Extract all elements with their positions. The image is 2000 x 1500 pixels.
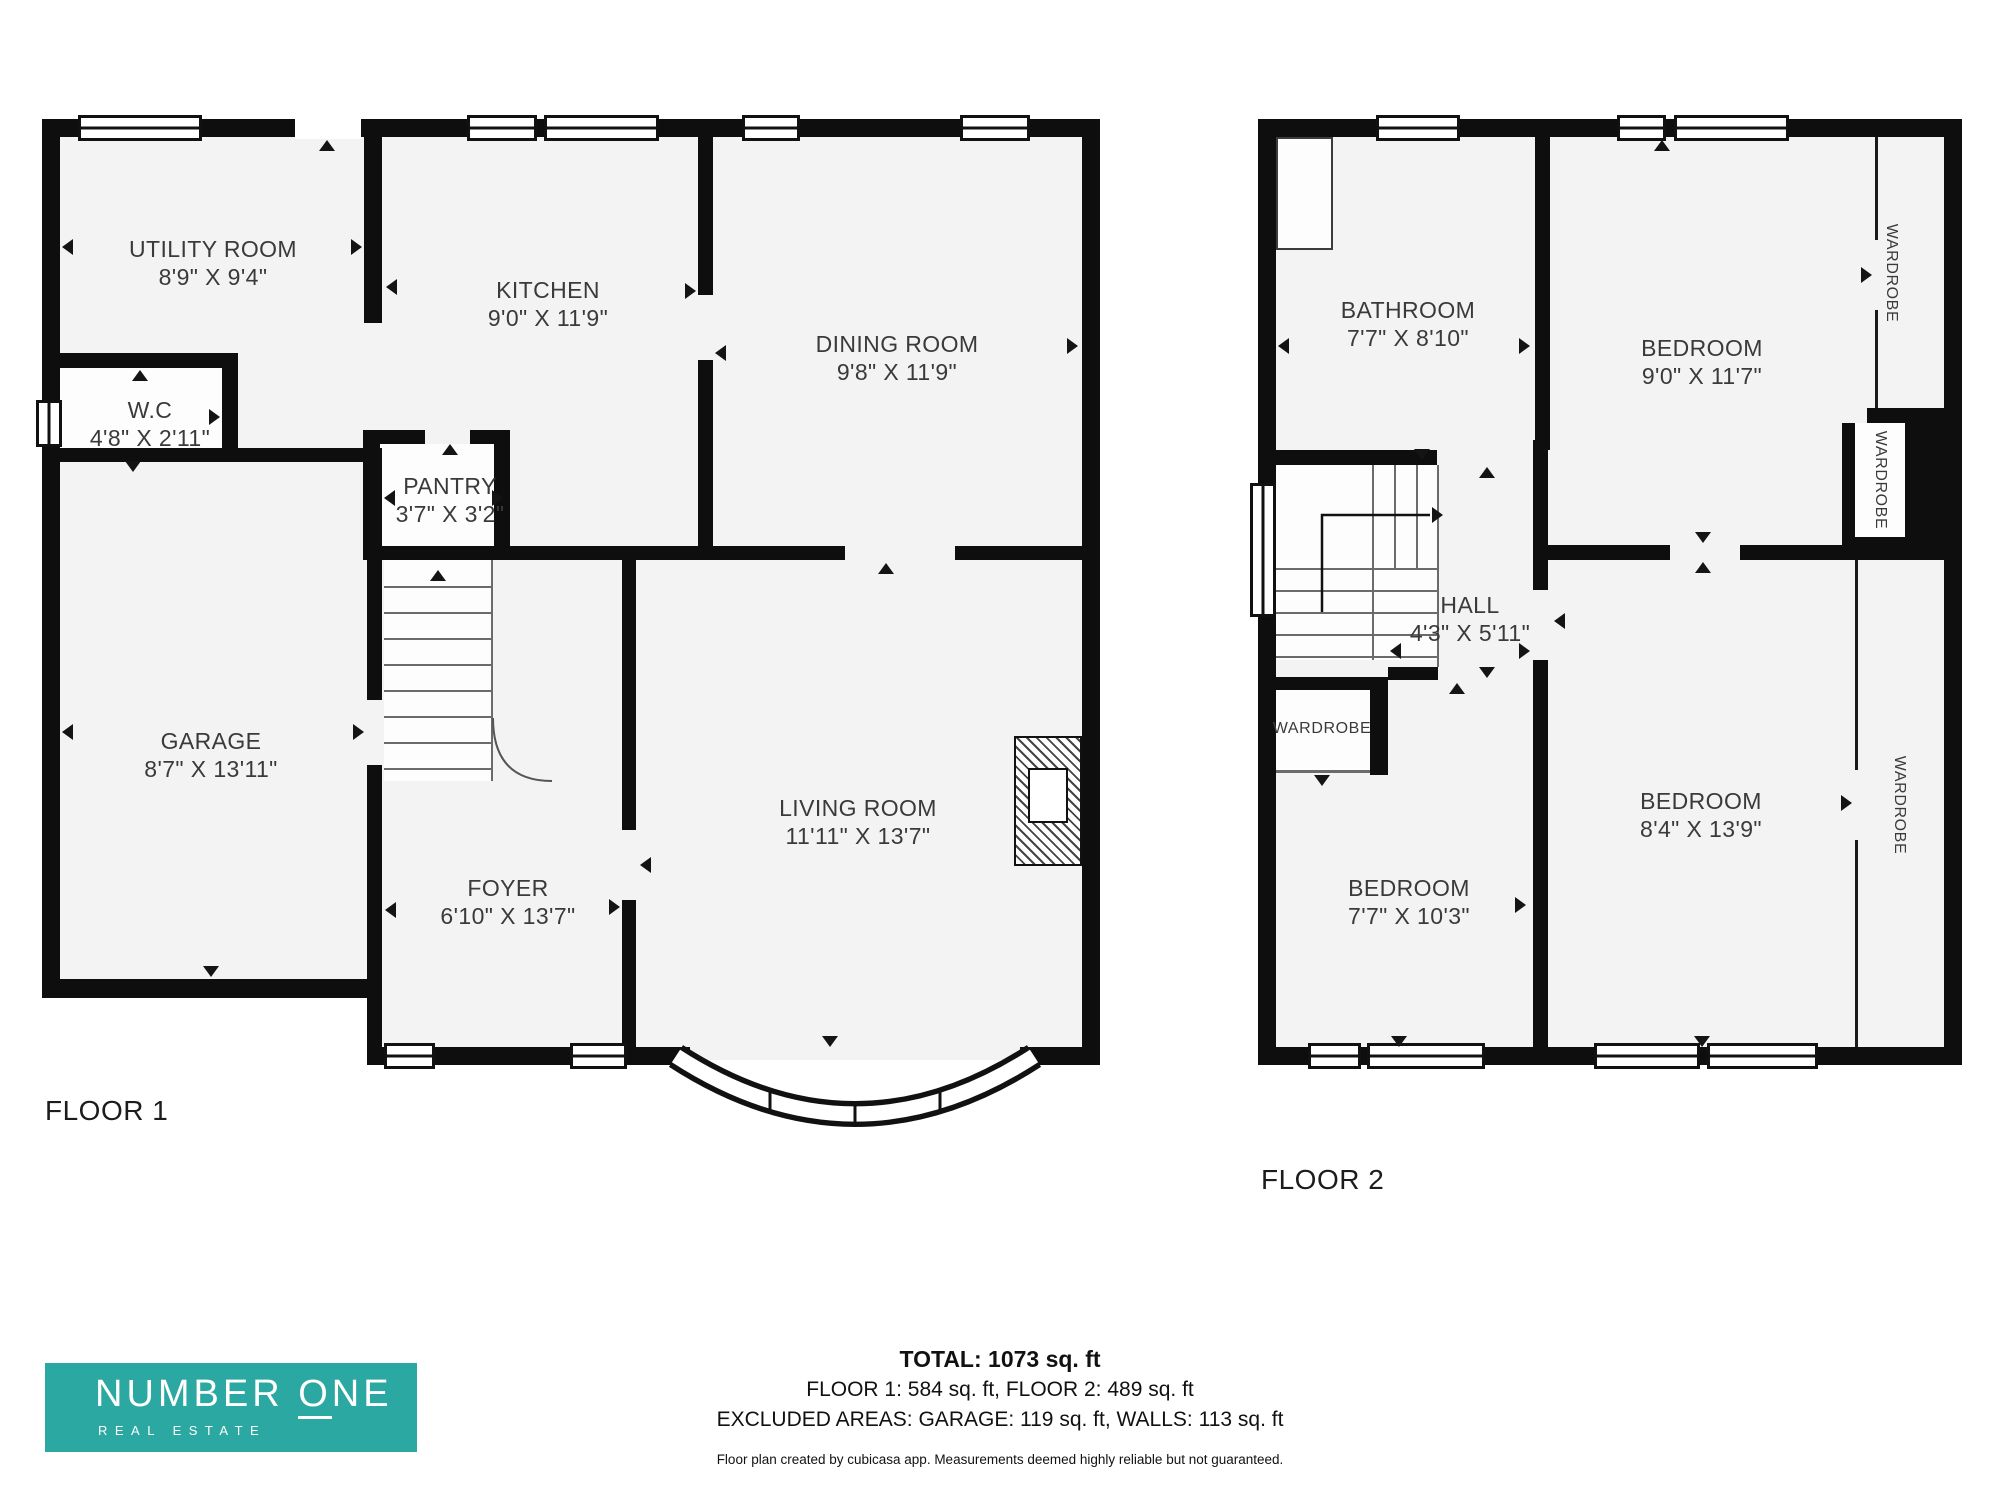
room-label-foyer: FOYER 6'10" X 13'7" [440,874,575,930]
window-icon [1308,1043,1361,1069]
window-icon [384,1043,435,1069]
stair-tread-line [384,638,491,640]
wall-segment [1905,423,1962,540]
door-arrow-icon [1432,507,1443,523]
door-arrow-icon [209,409,220,425]
logo-brand-o-underlined: O [298,1373,332,1419]
door-arrow-icon [1695,562,1711,573]
door-arrow-icon [203,966,219,977]
disclaimer-text: Floor plan created by cubicasa app. Meas… [0,1452,2000,1467]
door-arrow-icon [1654,140,1670,151]
wall-segment [1020,1047,1100,1065]
wall-segment [1082,119,1100,1065]
stair-tread-line [384,612,491,614]
room-name: DINING ROOM [816,330,979,358]
window-icon [1674,115,1789,141]
door-arrow-icon [1479,667,1495,678]
door-arrow-icon [1414,449,1430,460]
room-name: GARAGE [144,727,277,755]
room-dims: 8'4" X 13'9" [1640,815,1762,843]
door-arrow-icon [1390,643,1401,659]
stair-tread-line [384,664,491,666]
room-label-bathroom: BATHROOM 7'7" X 8'10" [1341,296,1475,352]
wall-segment [364,119,382,323]
stair-tread-line [1372,465,1374,660]
wall-segment [1535,119,1550,450]
door-arrow-icon [685,283,696,299]
stair-tread-line [1416,465,1418,568]
room-label-living-room: LIVING ROOM 11'11" X 13'7" [779,794,937,850]
room-name: PANTRY [396,472,505,500]
door-arrow-icon [351,239,362,255]
wall-segment [367,765,382,1065]
door-arrow-icon [1278,338,1289,354]
stair-tread-line [384,742,491,744]
room-label-bedroom-top: BEDROOM 9'0" X 11'7" [1641,334,1763,390]
window-icon [1367,1043,1485,1069]
room-label-kitchen: KITCHEN 9'0" X 11'9" [488,276,608,332]
window-icon [544,115,659,141]
wardrobe-front-line [1875,137,1878,240]
door-arrow-icon [132,370,148,381]
room-dims: 9'0" X 11'9" [488,304,608,332]
room-dims: 9'0" X 11'7" [1641,362,1763,390]
wall-segment [702,546,845,560]
fireplace-opening [1028,768,1068,823]
wall-segment [1533,440,1548,590]
door-arrow-icon [1695,532,1711,543]
room-label-hall: HALL 4'3" X 5'11" [1410,591,1530,647]
door-arrow-icon [1314,775,1330,786]
wall-segment [42,353,238,368]
room-label-wardrobe-top-right: WARDROBE [1882,224,1900,322]
wall-segment [1370,677,1388,775]
room-name: KITCHEN [488,276,608,304]
logo-brand-part2: NE [332,1373,393,1415]
room-label-garage: GARAGE 8'7" X 13'11" [144,727,277,783]
stair-tread-line [1276,568,1437,570]
floor2-caption: FLOOR 2 [1261,1164,1384,1196]
wall-segment [1740,545,1850,560]
door-arrow-icon [1861,267,1872,283]
door-arrow-icon [1479,467,1495,478]
wall-segment [1535,545,1670,560]
door-arrow-icon [1694,1036,1710,1047]
wall-segment [222,353,238,462]
room-name: HALL [1410,591,1530,619]
wall-segment [363,430,380,560]
door-opening [295,117,361,139]
room-dims: 9'8" X 11'9" [816,358,979,386]
room-label-wc: W.C 4'8" X 2'11" [90,396,210,452]
room-dims: 3'7" X 3'2" [396,500,505,528]
window-icon [742,115,800,141]
room-name: UTILITY ROOM [129,235,297,263]
wardrobe-front-line [1875,310,1878,408]
door-arrow-icon [1067,338,1078,354]
room-name: BEDROOM [1640,787,1762,815]
door-arrow-icon [62,724,73,740]
window-icon [78,115,202,141]
door-arrow-icon [319,140,335,151]
window-icon [36,400,62,447]
room-dims: 8'9" X 9'4" [129,263,297,291]
door-arrow-icon [1449,683,1465,694]
closet-nook [1276,137,1333,250]
stair-tread-line [384,690,491,692]
stair-tread-line [1394,465,1396,568]
door-arrow-icon [1554,613,1565,629]
wall-segment [1258,119,1962,137]
window-icon [1250,483,1276,617]
room-name: BEDROOM [1641,334,1763,362]
room-name: BEDROOM [1348,874,1470,902]
wall-segment [622,900,636,1065]
wall-segment [1867,408,1962,423]
window-icon [467,115,537,141]
door-arrow-icon [442,444,458,455]
room-dims: 7'7" X 8'10" [1341,324,1475,352]
stair-tread-line [384,586,491,588]
wall-segment [1258,450,1437,465]
room-fill-light [384,560,493,781]
door-arrow-icon [386,279,397,295]
door-arrow-icon [609,899,620,915]
floorplan-geometry [0,0,2000,1500]
door-arrow-icon [385,902,396,918]
door-arrow-icon [1515,897,1526,913]
stair-tread-line [384,768,491,770]
door-arrow-icon [384,490,395,506]
floorplan-page: UTILITY ROOM 8'9" X 9'4" W.C 4'8" X 2'11… [0,0,2000,1500]
window-icon [1707,1043,1818,1069]
wall-segment [1842,537,1962,560]
wall-segment [510,546,702,560]
wall-segment [1842,423,1855,540]
window-icon [1376,115,1460,141]
window-icon [570,1043,627,1069]
room-label-wardrobe-left: WARDROBE [1273,720,1371,738]
door-arrow-icon [430,570,446,581]
stair-tread-line [491,560,493,781]
wall-segment [622,560,636,830]
door-arrow-icon [715,345,726,361]
room-label-bedroom-right: BEDROOM 8'4" X 13'9" [1640,787,1762,843]
logo-brand-text: NUMBER ONE [95,1373,393,1416]
room-name: BATHROOM [1341,296,1475,324]
wardrobe-front-line [1855,560,1858,770]
room-label-bedroom-left: BEDROOM 7'7" X 10'3" [1348,874,1470,930]
wall-segment [1388,667,1438,680]
room-label-utility-room: UTILITY ROOM 8'9" X 9'4" [129,235,297,291]
door-arrow-icon [1391,1036,1407,1047]
room-name: LIVING ROOM [779,794,937,822]
window-icon [1594,1043,1700,1069]
logo-subtitle-text: REAL ESTATE [98,1423,266,1438]
room-label-wardrobe-bottom-right: WARDROBE [1890,756,1908,854]
door-arrow-icon [1519,338,1530,354]
room-label-pantry: PANTRY 3'7" X 3'2" [396,472,505,528]
room-label-wardrobe-mid-right: WARDROBE [1871,431,1889,529]
door-arrow-icon [125,461,141,472]
door-arrow-icon [62,239,73,255]
stair-tread-line [1276,656,1437,658]
fireplace-icon [1014,736,1082,866]
wall-segment [42,979,382,998]
room-dims: 11'11" X 13'7" [779,822,937,850]
wall-segment [698,119,713,295]
wall-segment [1533,660,1548,1047]
room-dims: 4'8" X 2'11" [90,424,210,452]
door-arrow-icon [822,1036,838,1047]
window-icon [960,115,1030,141]
door-arrow-icon [1841,795,1852,811]
wall-segment [363,546,510,560]
room-label-dining-room: DINING ROOM 9'8" X 11'9" [816,330,979,386]
wardrobe-front-line [1855,840,1858,1047]
wall-segment [698,360,713,560]
stair-tread-line [1276,770,1370,773]
wall-segment [1944,119,1962,1065]
room-dims: 7'7" X 10'3" [1348,902,1470,930]
room-dims: 8'7" X 13'11" [144,755,277,783]
floor1-caption: FLOOR 1 [45,1095,168,1127]
door-arrow-icon [353,724,364,740]
room-name: W.C [90,396,210,424]
door-arrow-icon [640,857,651,873]
number-one-real-estate-logo: NUMBER ONE REAL ESTATE [45,1363,417,1452]
room-dims: 6'10" X 13'7" [440,902,575,930]
room-name: FOYER [440,874,575,902]
window-icon [1617,115,1666,141]
room-dims: 4'3" X 5'11" [1410,619,1530,647]
wall-segment [955,546,1082,560]
wall-segment [1266,677,1370,690]
stair-tread-line [384,716,491,718]
logo-brand-part1: NUMBER [95,1373,298,1415]
door-arrow-icon [878,563,894,574]
wall-segment [42,119,60,998]
